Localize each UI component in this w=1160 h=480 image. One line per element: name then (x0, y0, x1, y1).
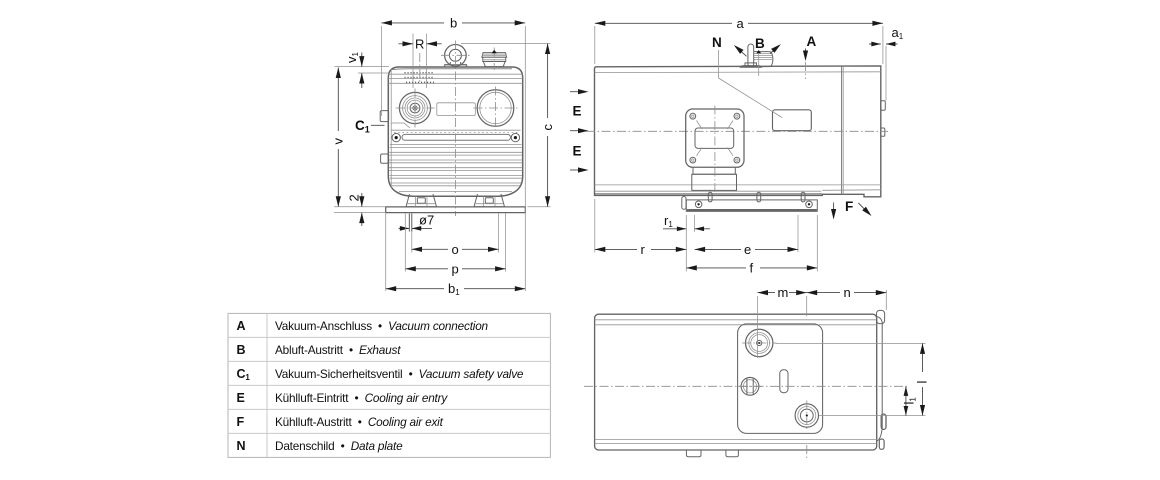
svg-text:l1: l1 (902, 397, 918, 405)
svg-text:2: 2 (346, 194, 361, 201)
svg-text:r: r (641, 242, 646, 257)
svg-text:Vakuum-Anschluss • Vacuum co: Vakuum-Anschluss • Vacuum connection (275, 319, 489, 333)
svg-text:N: N (712, 35, 722, 50)
svg-text:ø7: ø7 (419, 213, 434, 228)
svg-text:F: F (237, 415, 245, 429)
svg-text:e: e (744, 242, 751, 257)
svg-text:A: A (807, 34, 817, 49)
svg-text:E: E (237, 391, 245, 405)
svg-text:b: b (450, 16, 457, 31)
svg-text:E: E (573, 144, 582, 159)
svg-text:a: a (737, 16, 745, 31)
svg-text:Kühlluft-Austritt • Cooling: Kühlluft-Austritt • Cooling air exit (275, 415, 444, 429)
svg-text:R: R (415, 36, 424, 51)
svg-text:B: B (237, 343, 246, 357)
svg-text:F: F (845, 199, 853, 214)
svg-text:a1: a1 (892, 25, 904, 41)
svg-text:B: B (755, 36, 765, 51)
svg-text:p: p (452, 261, 459, 276)
svg-text:Kühlluft-Eintritt • Cooling: Kühlluft-Eintritt • Cooling air entry (275, 391, 448, 405)
svg-text:v: v (331, 138, 346, 145)
svg-text:m: m (778, 285, 789, 300)
svg-text:Abluft-Austritt • Exhaust: Abluft-Austritt • Exhaust (275, 343, 401, 357)
svg-text:E: E (573, 104, 582, 119)
svg-text:A: A (237, 319, 246, 333)
svg-text:Datenschild • Data plate: Datenschild • Data plate (275, 439, 403, 453)
svg-text:n: n (844, 285, 851, 300)
svg-text:b1: b1 (448, 281, 460, 297)
svg-text:r1: r1 (664, 213, 673, 229)
svg-text:Vakuum-Sicherheitsventil • V: Vakuum-Sicherheitsventil • Vacuum safety… (275, 367, 524, 381)
svg-text:v1: v1 (344, 52, 360, 64)
svg-text:o: o (452, 242, 459, 257)
svg-text:c: c (540, 124, 555, 131)
svg-text:f: f (750, 260, 754, 275)
svg-text:C1: C1 (355, 118, 370, 135)
svg-text:N: N (237, 439, 246, 453)
svg-text:l: l (915, 381, 930, 384)
